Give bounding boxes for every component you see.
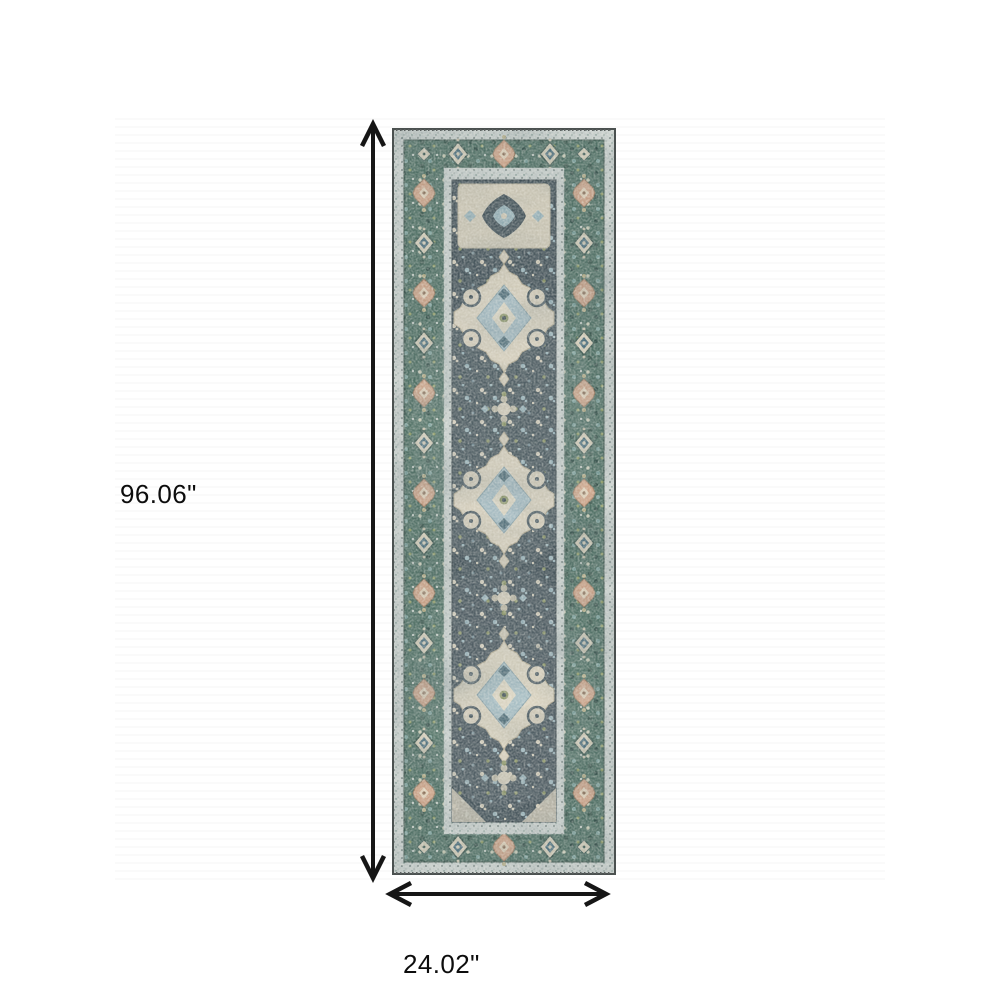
- product-dimension-diagram: 96.06" 24.02": [0, 0, 1000, 1000]
- horizontal-dimension-arrow-icon: [390, 883, 606, 905]
- width-label: 24.02": [403, 949, 480, 980]
- height-label: 96.06": [120, 479, 197, 510]
- rug-distress-overlay: [392, 128, 616, 875]
- rug-image: [392, 128, 616, 875]
